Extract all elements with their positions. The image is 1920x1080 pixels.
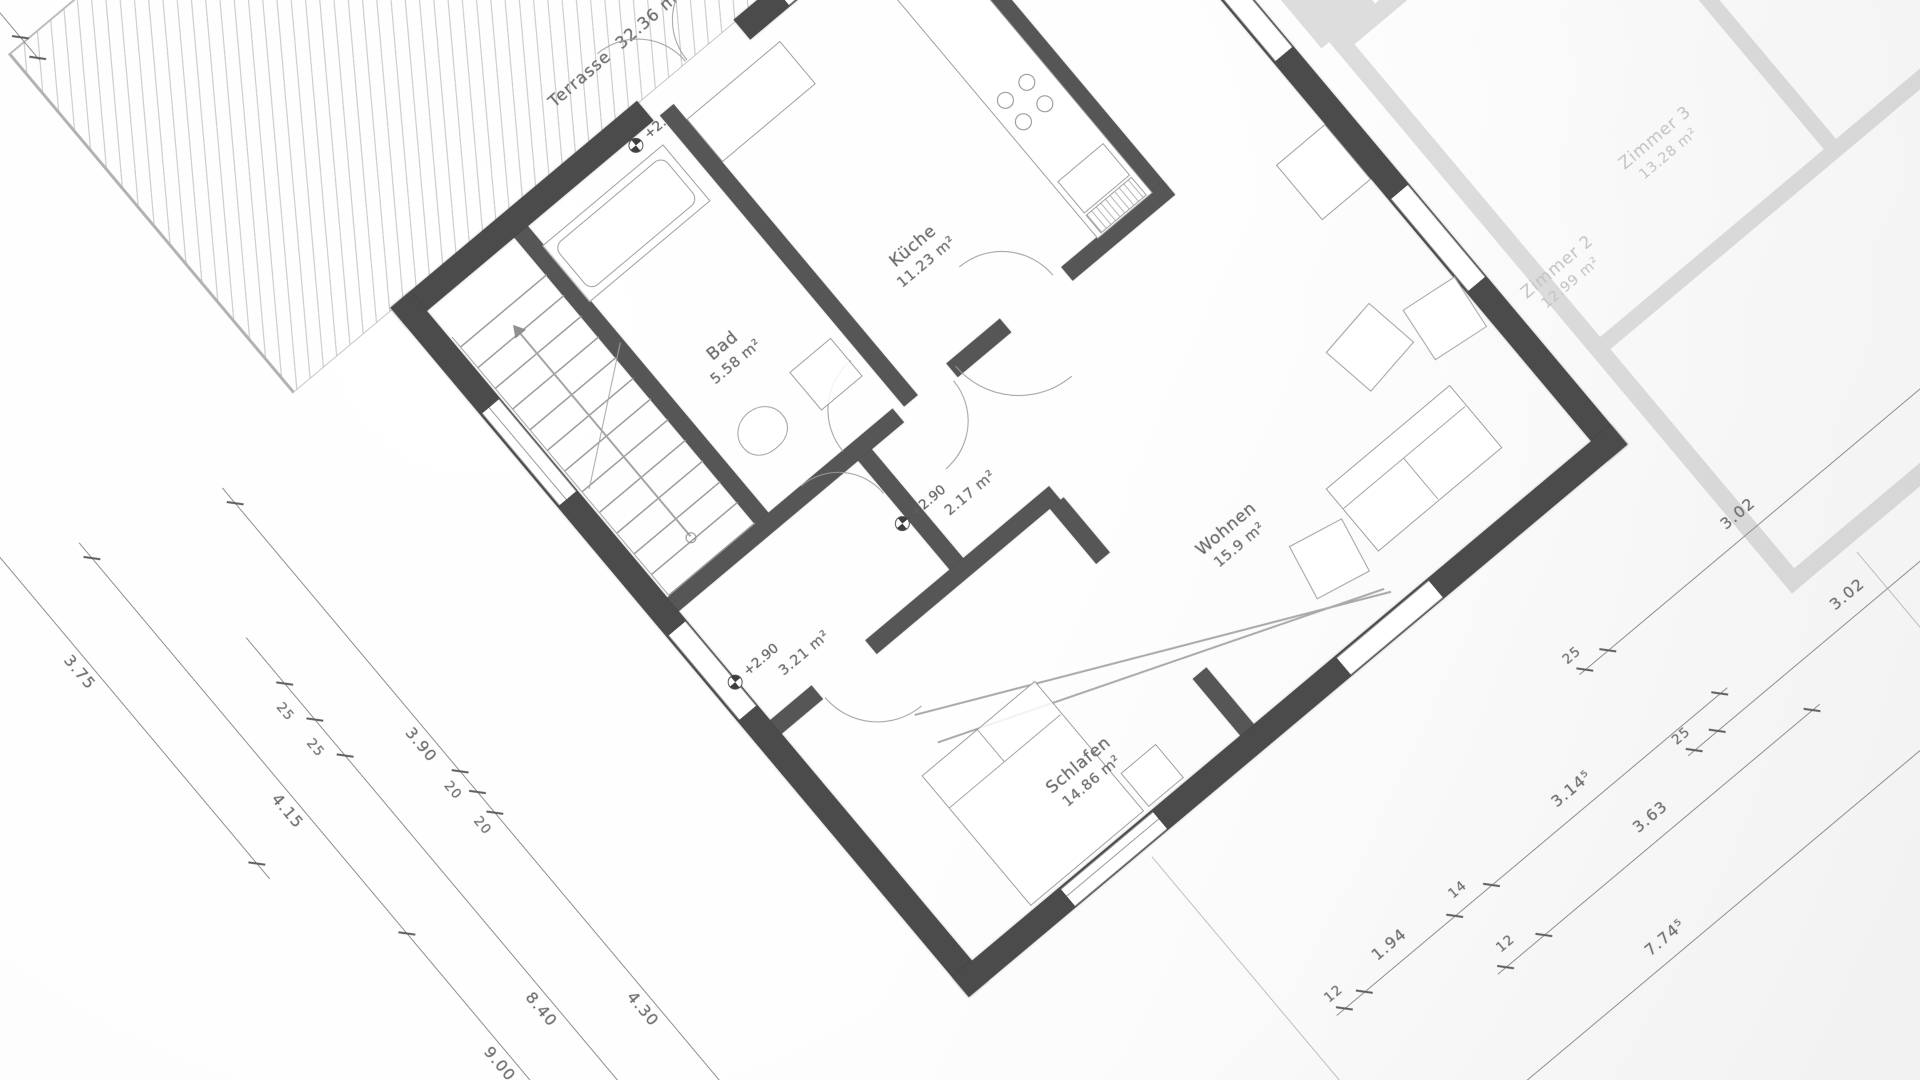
window-south-wohnen	[1336, 580, 1443, 675]
window-east-wohnen-1	[1197, 0, 1292, 62]
dim-line-w375	[0, 480, 270, 879]
dim-south-363: 3.63	[1629, 797, 1672, 837]
dim-west-375: 3.75	[60, 651, 100, 694]
room-label-kueche: Küche 11.23 m²	[852, 193, 987, 316]
dim-east-25a: 25	[1559, 643, 1584, 668]
floor-plan-scan: Terrasse 32.36 m² +2.72	[0, 0, 1920, 1080]
elevation-icon	[891, 513, 912, 534]
door-arc-kueche	[959, 224, 1053, 318]
sofa	[1326, 385, 1503, 552]
dim-west-20b: 20	[470, 813, 495, 838]
witness-line	[1857, 552, 1920, 706]
dim-south-7745: 7.74⁵	[1641, 915, 1689, 960]
dim-west-840: 8.40	[521, 988, 561, 1031]
door-arc-wc	[906, 380, 995, 469]
dim-west-390: 3.90	[401, 723, 441, 766]
dim-west-430: 4.30	[623, 988, 663, 1031]
room-label-zimmer3: Zimmer 3 13.28 m²	[1594, 85, 1729, 208]
dim-west-25b: 25	[303, 735, 328, 760]
dim-south-12a: 12	[1321, 982, 1346, 1007]
dim-east-25b: 25	[1669, 724, 1694, 749]
dim-west-415: 4.15	[268, 790, 308, 833]
plan-sheet: Terrasse 32.36 m² +2.72	[0, 0, 1920, 1080]
wall-flur-schlafen-a	[770, 685, 823, 733]
armchair-1	[1326, 303, 1415, 392]
room-label-bad: Bad 5.58 m²	[670, 299, 789, 409]
witness-line	[1151, 856, 1422, 1080]
door-arc-wohnen	[955, 313, 1072, 430]
door-arc-schlafen	[825, 653, 922, 750]
coffee-table	[1289, 518, 1370, 599]
room-label-wohnen: Wohnen 15.9 m²	[1166, 476, 1301, 599]
toilet	[727, 396, 796, 465]
wall-schlafen-wohnen-a	[1050, 497, 1110, 564]
dim-west-25a: 25	[273, 699, 298, 724]
wall-schlafen-wohnen-b	[1193, 667, 1254, 735]
dim-west-20a: 20	[441, 778, 466, 803]
dim-south-14: 14	[1445, 877, 1470, 902]
dim-south-12b: 12	[1493, 931, 1518, 956]
